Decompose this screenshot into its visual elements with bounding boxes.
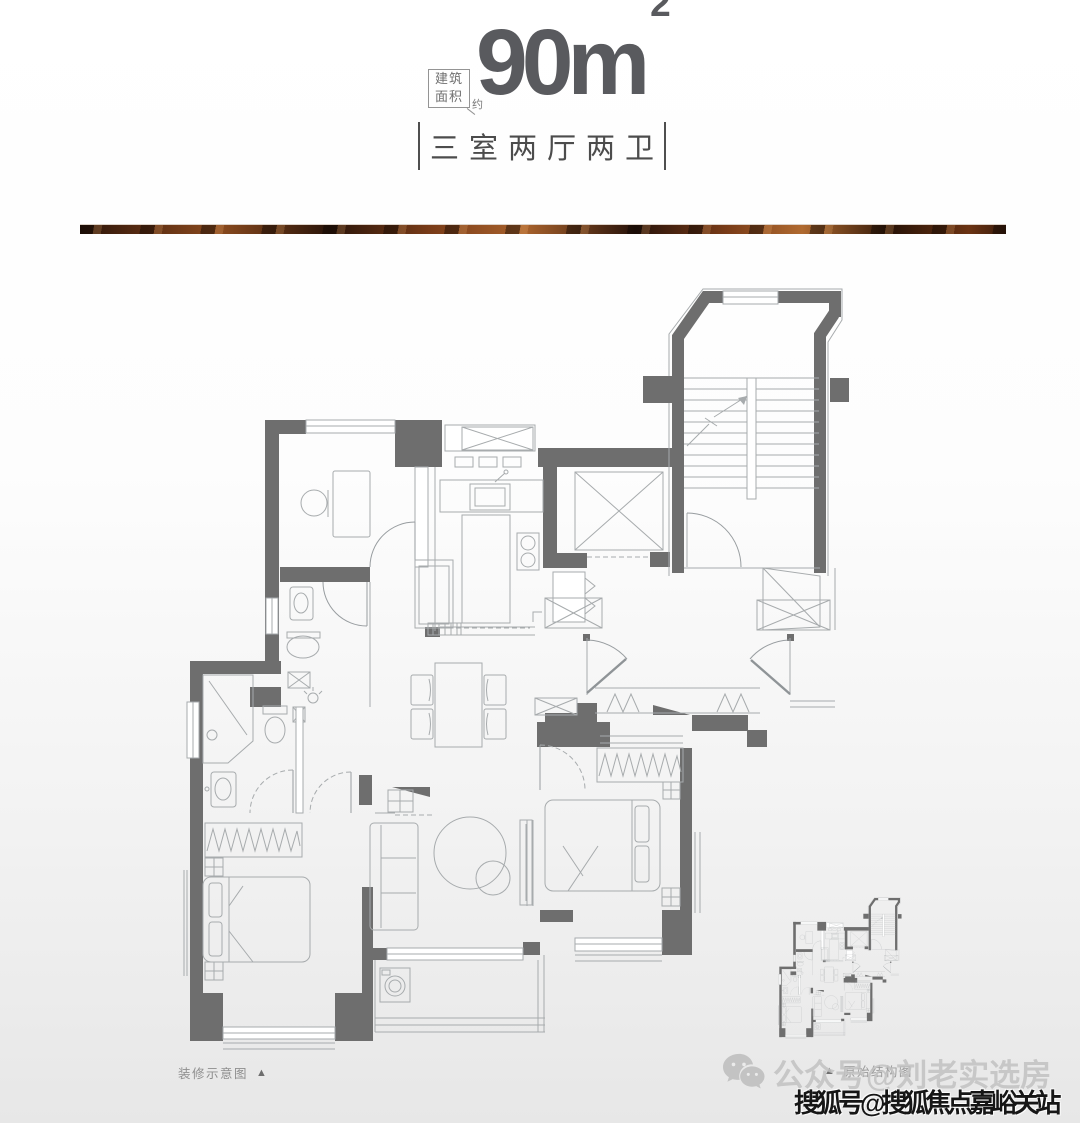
built-area-label-line1: 建筑: [429, 70, 469, 88]
decorated-plan-caption: 装修示意图 ▲: [178, 1063, 267, 1082]
elevator: [575, 472, 663, 557]
right-bracket: [664, 122, 666, 170]
bathroom-1: [266, 582, 370, 722]
built-area-label-line2: 面积: [429, 88, 469, 106]
area-superscript: 2: [650, 0, 671, 24]
ac-platform: [445, 425, 535, 467]
living-dining: [370, 663, 532, 930]
page: { "header": { "area_label_line1": "建筑", …: [0, 0, 1080, 1123]
floor-plan: [183, 286, 873, 1051]
sohu-watermark: 搜狐号@搜狐焦点嘉峪关站: [794, 1083, 1057, 1120]
layout-summary: 三室两厅两卫: [418, 119, 666, 173]
kitchen: [415, 467, 543, 635]
area-value: 90m2: [476, 16, 665, 109]
triangle-marker-icon: ▲: [256, 1067, 267, 1079]
wechat-icon: [721, 1052, 767, 1094]
balcony: [375, 948, 545, 1032]
copper-divider: [80, 224, 1006, 234]
built-area-label-box: 建筑 面积: [428, 69, 470, 108]
original-structure-inset-plan: [778, 897, 906, 1039]
bathroom-2: [187, 675, 303, 813]
layout-text: 三室两厅两卫: [420, 125, 664, 167]
sohu-watermark-text: 搜狐号@搜狐焦点嘉峪关站: [794, 1088, 1057, 1118]
stairwell: [643, 289, 849, 576]
decorated-plan-caption-text: 装修示意图: [178, 1063, 248, 1082]
entry-hall: [440, 568, 835, 715]
